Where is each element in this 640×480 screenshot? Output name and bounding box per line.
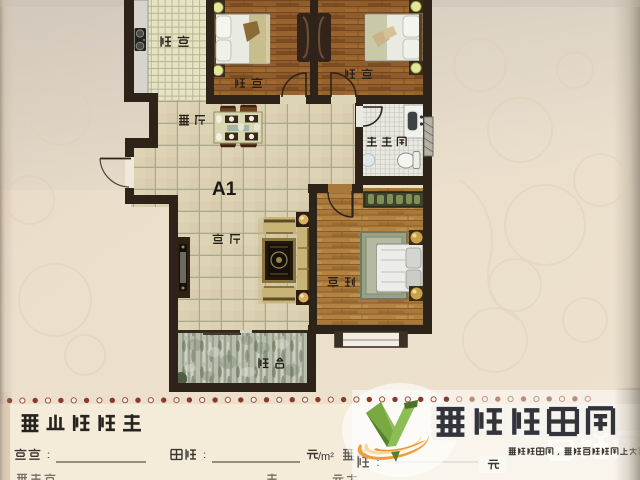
- svg-text:/m²: /m²: [318, 451, 334, 463]
- svg-text:A1: A1: [212, 179, 237, 200]
